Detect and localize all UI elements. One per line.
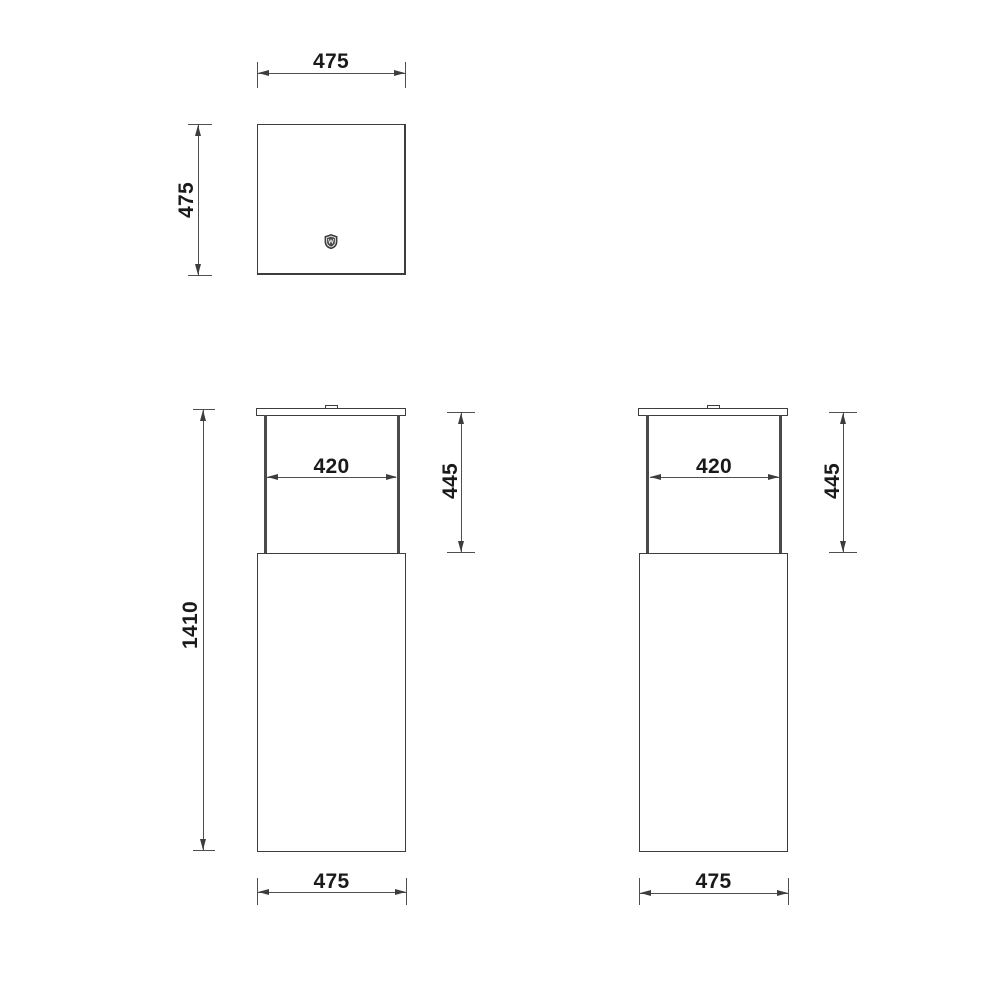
dimension-label: 420: [314, 455, 350, 479]
extension-line: [405, 62, 406, 88]
dimension-label: 445: [439, 463, 463, 499]
arrowhead-right-icon: [386, 474, 397, 480]
dimension-label: 475: [696, 870, 732, 894]
dimension-label: 475: [314, 870, 350, 894]
glass-post-right: [397, 415, 400, 553]
arrowhead-up-icon: [840, 413, 846, 424]
arrowhead-left-icon: [267, 474, 278, 480]
lid-cap: [256, 408, 406, 416]
arrowhead-left-icon: [258, 889, 269, 895]
arrowhead-left-icon: [258, 70, 269, 76]
base-column-outline: [639, 553, 788, 852]
arrowhead-up-icon: [458, 413, 464, 424]
arrowhead-up-icon: [195, 125, 201, 136]
top-view-outline: [257, 124, 406, 275]
dimension-label: 445: [821, 463, 845, 499]
arrowhead-right-icon: [395, 889, 406, 895]
glass-post-right: [779, 415, 782, 553]
arrowhead-down-icon: [200, 839, 206, 850]
arrowhead-left-icon: [640, 890, 651, 896]
dimension-label: 420: [696, 455, 732, 479]
glass-post-left: [646, 415, 649, 553]
arrowhead-down-icon: [195, 264, 201, 275]
base-column-outline: [257, 553, 406, 852]
extension-line: [193, 850, 215, 851]
arrowhead-right-icon: [394, 70, 405, 76]
lid-cap: [638, 408, 788, 416]
brand-shield-icon: [324, 234, 338, 249]
dimension-label: 475: [313, 50, 349, 74]
extension-line: [788, 878, 789, 905]
arrowhead-right-icon: [777, 890, 788, 896]
dimension-label: 475: [175, 182, 199, 218]
arrowhead-down-icon: [458, 541, 464, 552]
arrowhead-up-icon: [200, 410, 206, 421]
technical-drawing-canvas: 475 475 420: [0, 0, 1000, 1000]
glass-post-left: [264, 415, 267, 553]
extension-line: [406, 878, 407, 905]
arrowhead-right-icon: [768, 474, 779, 480]
dimension-label: 1410: [179, 601, 203, 649]
arrowhead-down-icon: [840, 541, 846, 552]
arrowhead-left-icon: [650, 474, 661, 480]
